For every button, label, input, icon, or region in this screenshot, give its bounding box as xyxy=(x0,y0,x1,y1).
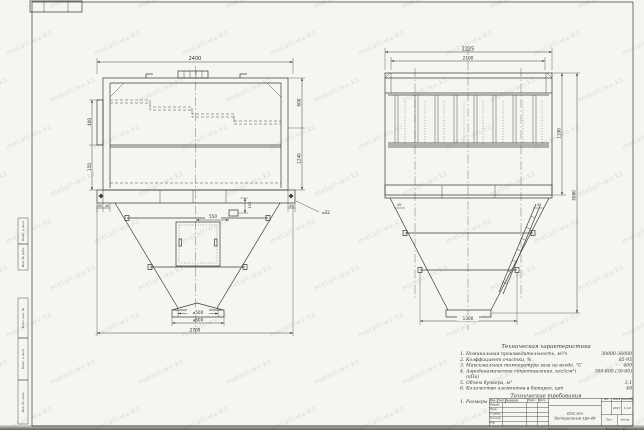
spec-value: 48 xyxy=(586,386,632,392)
spec-item: 4. Аэродинамическое сопротивление, кгс/(… xyxy=(460,368,632,380)
mass-cell: Масса 2017 xyxy=(612,399,622,415)
tb-empty-cell xyxy=(503,408,527,412)
tb-row-label: Н.контр. xyxy=(490,417,503,421)
mass-value: 2017 xyxy=(613,402,621,415)
scan-bottom-shadow xyxy=(0,425,644,430)
side-view-linework xyxy=(385,46,552,330)
dim-side-total-height: 3080 xyxy=(572,190,577,201)
corner-stamp-box xyxy=(30,1,82,12)
title-block-attrs: Лит. Масса 2017 Масштаб 1:10 Лист Листов xyxy=(602,399,633,426)
scale-cell: Масштаб 1:10 xyxy=(622,399,632,415)
dim-front-flange-dia: ⌀600 xyxy=(193,318,204,323)
tb-empty-cell xyxy=(538,403,549,407)
dim-front-fitting-height: 105 xyxy=(248,202,252,209)
dim-front-fitting-offset: 550 xyxy=(209,214,217,219)
drawing-title: Циклон батарейный ЦБ-48 xyxy=(549,406,601,426)
tb-empty-cell xyxy=(527,408,538,412)
sheets-label: Листов xyxy=(617,415,632,426)
dim-front-bolt-dia: ⌀32 xyxy=(322,210,330,215)
dim-side-top-width: 2225 xyxy=(462,46,475,52)
dim-front-right-lower: 1240 xyxy=(297,153,302,164)
side-view: 2225 2100 1190 3080 45 45 1300 xyxy=(385,46,580,330)
drawing-title-line2: батарейный ЦБ-48 xyxy=(554,416,595,421)
spec-label: Аэродинамическое сопротивление, кгс/(см²… xyxy=(466,368,586,380)
document-designation-cell xyxy=(549,399,601,407)
margin-stamp-label: Инв. № дубл. xyxy=(21,247,25,268)
dim-front-outlet-dia: ⌀500 xyxy=(193,310,204,315)
tb-empty-cell xyxy=(538,408,549,412)
tb-empty-cell xyxy=(503,403,527,407)
tb-row-label: Пров. xyxy=(490,408,503,412)
spec-value: 300-600 (30-60) xyxy=(586,368,632,380)
dim-front-base-left-a: 90 xyxy=(98,204,102,208)
front-view-linework xyxy=(97,66,295,334)
dim-front-base-left-b: 40 xyxy=(105,204,109,208)
tb-header-cell: Лист xyxy=(498,399,506,403)
tb-header-cell: № докум. xyxy=(506,399,528,403)
sheet-label: Лист xyxy=(602,415,618,426)
tb-row-label: Разраб. xyxy=(490,403,503,407)
specs-title: Техническая характеристика xyxy=(460,343,632,350)
dim-front-base-width: 2700 xyxy=(190,327,201,332)
front-view: 2400 400 150 90 40 40 ⌀32 6 xyxy=(87,56,330,336)
margin-stamps: Подп. и дата Инв. № дубл. Взам. инв. № П… xyxy=(18,218,28,424)
margin-stamp-label: Подп. и дата xyxy=(21,221,25,242)
tb-empty-cell xyxy=(503,417,527,421)
spec-label: Количество элементов в батарее, шт xyxy=(466,386,586,392)
dim-side-inner-width: 2100 xyxy=(463,56,474,61)
dim-front-right-upper: 600 xyxy=(297,98,302,106)
margin-stamp-label: Инв. № подл. xyxy=(21,392,25,413)
front-view-dimensions: 2400 400 150 90 40 40 ⌀32 6 xyxy=(87,56,330,336)
technical-specs: Техническая характеристика 1. Номинальна… xyxy=(460,343,632,405)
dim-side-body-height: 1190 xyxy=(557,128,562,139)
tb-empty-cell xyxy=(503,412,527,416)
scale-value: 1:10 xyxy=(624,402,631,415)
margin-stamp-label: Подп. и дата xyxy=(21,349,25,370)
dim-front-left-upper: 400 xyxy=(87,118,92,126)
dim-side-slope-left: 45 xyxy=(397,203,401,207)
dim-side-slope-right: 45 xyxy=(537,203,541,207)
tb-empty-cell xyxy=(527,403,538,407)
margin-stamp-label: Взам. инв. № xyxy=(21,308,25,328)
tb-header-cell: Подп. xyxy=(528,399,539,403)
tb-header-cell: Дата xyxy=(539,399,549,403)
dim-front-top-width: 2400 xyxy=(189,56,202,62)
lit-label: Лит. xyxy=(602,399,612,402)
title-block-name-section: Циклон батарейный ЦБ-48 xyxy=(549,399,602,426)
dim-front-left-lower: 150 xyxy=(87,163,92,171)
tb-header-cell: Изм. xyxy=(490,399,498,403)
lit-cell: Лит. xyxy=(602,399,612,415)
tb-empty-cell xyxy=(538,412,549,416)
side-view-dimensions: 2225 2100 1190 3080 45 45 1300 xyxy=(385,46,580,325)
tb-row-label: Т.контр. xyxy=(490,412,503,416)
title-block: Изм. Лист № докум. Подп. Дата Разраб. Пр… xyxy=(489,398,633,426)
spec-item: 6. Количество элементов в батарее, шт 48 xyxy=(460,386,632,392)
title-block-revision-table: Изм. Лист № докум. Подп. Дата Разраб. Пр… xyxy=(490,399,550,426)
drawing-sheet: metall-wv.kzmetall-wv.kzmetall-wv.kzmeta… xyxy=(0,0,644,430)
tb-empty-cell xyxy=(527,412,538,416)
tb-empty-cell xyxy=(527,417,538,421)
dim-side-bottom-width: 1300 xyxy=(463,316,474,321)
tb-empty-cell xyxy=(538,417,549,421)
